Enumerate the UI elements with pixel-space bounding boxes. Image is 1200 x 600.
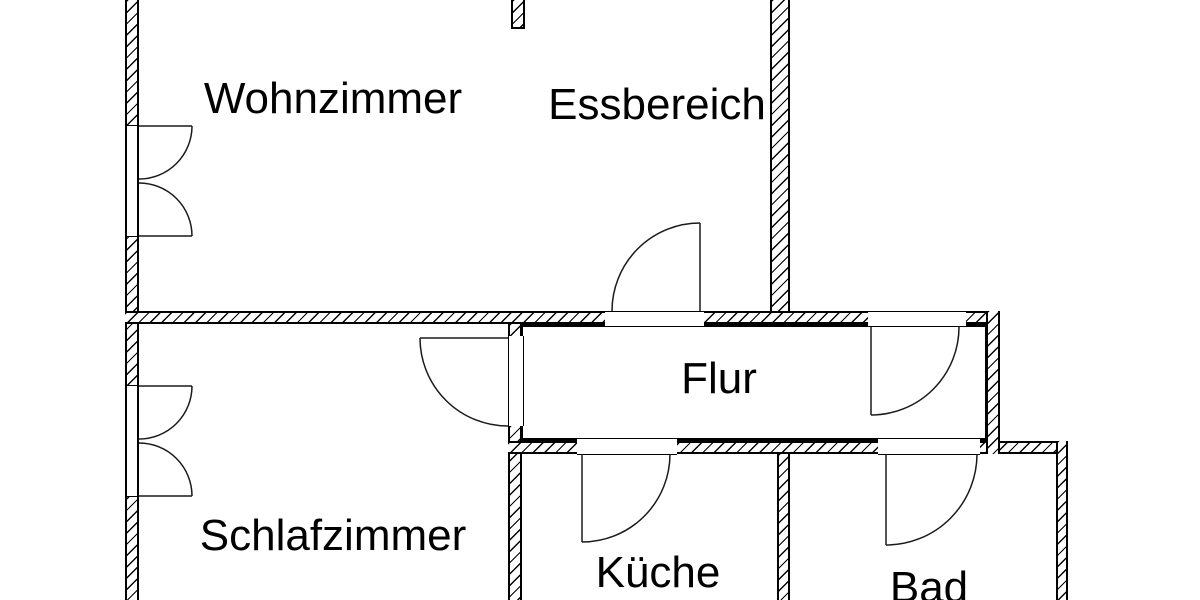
- door-arc-schlafzimmer: [420, 338, 508, 426]
- window-arc-wohnzimmer-top: [139, 126, 192, 179]
- wall-left-exterior: [125, 0, 139, 600]
- room-label-kueche: Küche: [596, 551, 721, 595]
- room-label-essbereich: Essbereich: [548, 83, 766, 127]
- wall-bad-right-exterior: [1056, 441, 1068, 600]
- door-opening-essbereich: [605, 311, 704, 327]
- window-arc-schlafzimmer-top: [139, 386, 192, 439]
- wall-essbereich-right: [770, 0, 790, 311]
- room-label-bad: Bad: [890, 566, 968, 600]
- door-arc-kueche: [582, 454, 670, 542]
- door-arc-essbereich: [612, 223, 700, 311]
- floor-plan: Wohnzimmer Essbereich Flur Schlafzimmer …: [0, 0, 1200, 600]
- room-label-schlafzimmer: Schlafzimmer: [200, 514, 467, 558]
- door-opening-entrance: [868, 311, 966, 327]
- wall-kueche-bad: [777, 454, 790, 600]
- wall-top-stub: [511, 0, 525, 29]
- window-schlafzimmer: [125, 385, 139, 497]
- window-arc-wohnzimmer-bottom: [139, 183, 192, 236]
- window-wohnzimmer: [125, 125, 139, 237]
- door-arc-bad: [886, 454, 977, 545]
- room-label-wohnzimmer: Wohnzimmer: [204, 77, 462, 121]
- window-arc-schlafzimmer-bottom: [139, 443, 192, 496]
- door-opening-schlafzimmer: [508, 336, 524, 426]
- room-label-flur: Flur: [681, 357, 757, 401]
- door-opening-bad: [878, 438, 980, 455]
- door-opening-kueche: [577, 438, 677, 455]
- wall-flur-right: [986, 311, 1000, 454]
